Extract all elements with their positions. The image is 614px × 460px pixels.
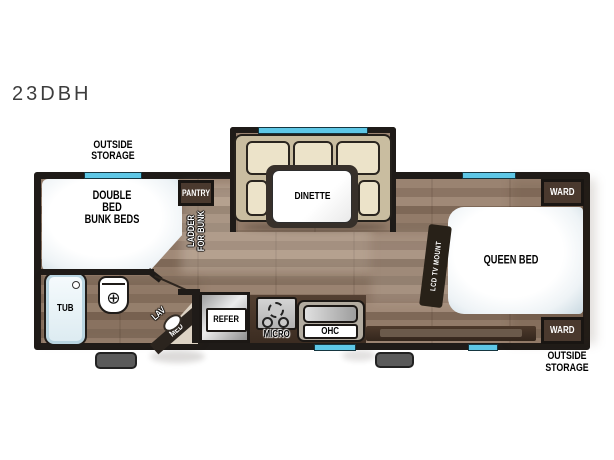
dinette-label: DINETTE (294, 191, 330, 202)
bunk-bed: DOUBLE BED BUNK BEDS (42, 179, 182, 271)
pantry-cabinet: PANTRY (178, 180, 214, 206)
ward-top-label: WARD (550, 188, 574, 198)
window-kitchen-bottom (314, 344, 356, 351)
window-bedroom-top (462, 172, 516, 179)
window-front-storage (84, 172, 142, 179)
queen-bed: QUEEN BED (448, 207, 583, 314)
floorplan-image: 23DBH OUTSIDE STORAGE DINETTE DOUBLE BED… (0, 0, 614, 460)
step-rear (375, 352, 414, 368)
ohc-label: OHC (322, 327, 340, 337)
toilet-seat-line (102, 283, 125, 285)
bed-base-rail-inner (380, 329, 522, 337)
kitchen-counter: OHC (297, 300, 365, 342)
step-front (95, 352, 137, 369)
kitchen-wall (192, 289, 199, 343)
sofa-seat-cushion (246, 180, 268, 216)
burner-icon (278, 317, 289, 328)
dinette-table: DINETTE (272, 170, 352, 223)
wardrobe-top: WARD (541, 179, 584, 206)
queen-bed-label: QUEEN BED (484, 255, 539, 267)
micro-label: MICRO (252, 330, 302, 340)
burner-icon (262, 317, 273, 328)
refrigerator-label-plate: REFER (206, 308, 247, 332)
tub: TUB (44, 272, 87, 346)
sink (303, 305, 358, 323)
window-bedroom-bottom (468, 344, 498, 351)
bathroom-wall (41, 269, 154, 275)
ohc-cabinet: OHC (303, 324, 358, 339)
sofa-seat-cushion (358, 180, 380, 216)
model-label: 23DBH (12, 84, 91, 104)
bed-base-rail (366, 326, 536, 341)
outside-storage-label-front: OUTSIDE STORAGE (62, 140, 164, 162)
outside-storage-front-line2: STORAGE (72, 151, 154, 162)
pantry-label: PANTRY (182, 189, 210, 198)
step-shadow (342, 350, 376, 361)
wardrobe-bottom: WARD (541, 317, 584, 344)
outside-storage-label-rear: OUTSIDE STORAGE (530, 351, 604, 374)
tub-label: TUB (57, 304, 73, 314)
ward-bottom-label: WARD (550, 326, 574, 336)
lavatory-unit: MED LAV (146, 294, 198, 344)
toilet: ⊕ (98, 276, 129, 314)
bunk-bed-label: DOUBLE BED BUNK BEDS (84, 190, 140, 226)
outside-storage-rear-line2: STORAGE (537, 363, 596, 375)
toilet-flush-icon: ⊕ (106, 290, 120, 307)
tv-mount-label: LCD TV MOUNT (429, 241, 443, 292)
ladder-label: LADDER FOR BUNK (186, 211, 206, 251)
window-slideout (258, 127, 368, 134)
refer-label: REFER (214, 315, 240, 325)
burner-icon (268, 302, 284, 318)
stove (256, 297, 297, 330)
tub-drain-icon (72, 281, 80, 289)
refrigerator: REFER (199, 292, 250, 343)
